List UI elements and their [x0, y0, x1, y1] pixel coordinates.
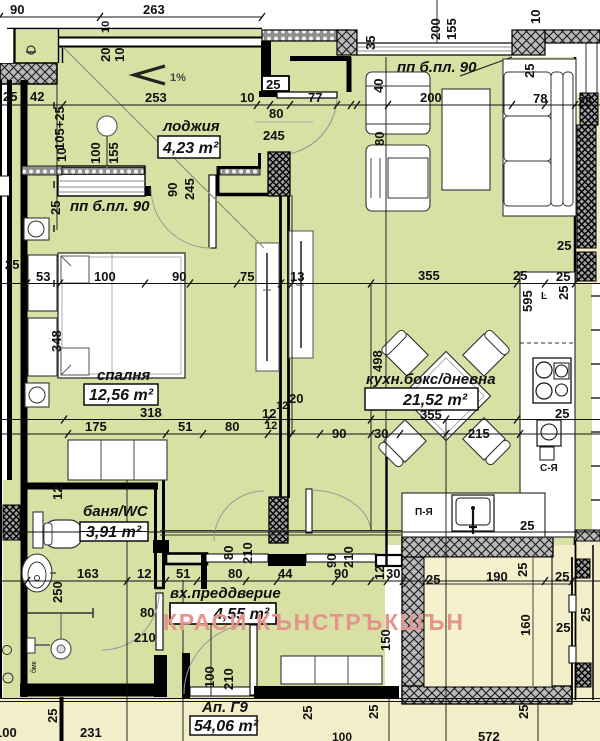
svg-text:40: 40	[371, 79, 386, 93]
svg-text:25: 25	[556, 286, 571, 300]
svg-text:12: 12	[50, 486, 65, 500]
svg-text:253: 253	[145, 90, 167, 105]
svg-text:80: 80	[372, 132, 387, 146]
svg-text:215: 215	[468, 426, 490, 441]
svg-text:лоджия: лоджия	[162, 118, 220, 135]
svg-text:4,23 m²: 4,23 m²	[162, 140, 219, 157]
svg-text:кухн.бокс/дневна: кухн.бокс/дневна	[366, 371, 496, 388]
svg-text:10: 10	[54, 148, 69, 162]
svg-text:80: 80	[269, 106, 283, 121]
svg-text:25: 25	[45, 709, 60, 723]
svg-text:спалня: спалня	[97, 367, 150, 384]
svg-text:355: 355	[418, 268, 440, 283]
svg-text:100: 100	[0, 725, 17, 740]
svg-text:вх.преддверие: вх.преддверие	[170, 585, 281, 602]
svg-text:348: 348	[49, 330, 64, 352]
svg-text:190: 190	[486, 569, 508, 584]
svg-text:78: 78	[533, 91, 547, 106]
svg-text:25: 25	[556, 620, 570, 635]
svg-text:Ап. Г9: Ап. Г9	[201, 699, 249, 716]
svg-text:21,52 m²: 21,52 m²	[402, 392, 468, 409]
svg-text:44: 44	[278, 566, 293, 581]
svg-text:10: 10	[240, 90, 254, 105]
svg-text:бмк: бмк	[30, 660, 38, 673]
svg-text:90: 90	[172, 269, 186, 284]
svg-text:25: 25	[556, 269, 570, 284]
svg-text:25: 25	[366, 705, 381, 719]
svg-text:баня/WC: баня/WC	[83, 503, 149, 520]
svg-text:100: 100	[88, 142, 103, 164]
svg-text:25: 25	[520, 518, 534, 533]
svg-text:51: 51	[178, 419, 192, 434]
svg-text:155: 155	[106, 142, 121, 164]
svg-text:Ŀ: Ŀ	[541, 291, 547, 302]
svg-text:25: 25	[522, 64, 537, 78]
svg-text:100: 100	[94, 269, 116, 284]
svg-text:25: 25	[426, 572, 440, 587]
svg-text:160: 160	[518, 614, 533, 636]
svg-text:25: 25	[515, 563, 530, 577]
svg-text:30: 30	[386, 566, 400, 581]
svg-text:318: 318	[140, 405, 162, 420]
svg-text:С-Я: С-Я	[540, 463, 558, 474]
svg-text:12: 12	[372, 566, 387, 580]
svg-text:80: 80	[228, 566, 242, 581]
svg-text:10: 10	[100, 21, 112, 33]
svg-text:25: 25	[266, 77, 280, 92]
svg-text:25: 25	[578, 94, 592, 109]
svg-text:КРАСИ КЪНСТРЪКШЪН: КРАСИ КЪНСТРЪКШЪН	[163, 609, 465, 635]
svg-text:498: 498	[370, 350, 385, 372]
svg-text:231: 231	[80, 725, 102, 740]
svg-text:51: 51	[176, 566, 190, 581]
svg-text:25: 25	[555, 406, 569, 421]
svg-text:42: 42	[30, 89, 44, 104]
svg-text:пп б.пл. 90: пп б.пл. 90	[70, 198, 150, 215]
svg-text:210: 210	[240, 542, 255, 564]
svg-text:25: 25	[555, 569, 569, 584]
svg-text:10: 10	[528, 10, 543, 24]
svg-text:1%: 1%	[170, 72, 186, 84]
svg-text:25: 25	[516, 705, 531, 719]
svg-text:25: 25	[578, 608, 593, 622]
svg-text:595: 595	[520, 290, 535, 312]
svg-text:245: 245	[182, 178, 197, 200]
svg-text:105+25: 105+25	[52, 106, 67, 150]
svg-text:80: 80	[140, 605, 154, 620]
svg-text:12: 12	[262, 406, 276, 421]
svg-text:100: 100	[332, 730, 352, 741]
svg-text:90: 90	[324, 554, 339, 568]
svg-text:210: 210	[341, 546, 356, 568]
svg-text:25: 25	[557, 238, 571, 253]
svg-text:80: 80	[221, 546, 236, 560]
svg-text:77: 77	[308, 90, 322, 105]
svg-text:250: 250	[50, 581, 65, 603]
svg-text:100: 100	[202, 666, 217, 688]
svg-text:12: 12	[276, 400, 288, 412]
svg-text:25: 25	[513, 268, 527, 283]
svg-text:175: 175	[85, 419, 107, 434]
svg-text:263: 263	[143, 2, 165, 17]
svg-text:53: 53	[36, 269, 50, 284]
svg-text:200: 200	[428, 18, 443, 40]
svg-text:20: 20	[289, 391, 303, 406]
svg-text:163: 163	[77, 566, 99, 581]
svg-text:200: 200	[420, 90, 442, 105]
svg-text:12: 12	[265, 420, 277, 432]
svg-text:12,56 m²: 12,56 m²	[89, 387, 154, 404]
svg-text:3,91 m²: 3,91 m²	[86, 524, 142, 541]
svg-text:30: 30	[374, 426, 388, 441]
svg-text:13: 13	[290, 269, 304, 284]
svg-text:75: 75	[240, 269, 254, 284]
svg-text:210: 210	[221, 668, 236, 690]
svg-text:90: 90	[332, 426, 346, 441]
svg-text:572: 572	[478, 729, 500, 741]
svg-text:80: 80	[225, 419, 239, 434]
svg-text:54,06 m²: 54,06 m²	[194, 718, 259, 735]
svg-text:10: 10	[112, 48, 127, 62]
svg-text:155: 155	[444, 18, 459, 40]
svg-text:25: 25	[48, 201, 63, 215]
svg-text:25: 25	[3, 89, 17, 104]
svg-text:25: 25	[5, 257, 19, 272]
svg-text:25: 25	[300, 706, 315, 720]
svg-text:12: 12	[137, 566, 151, 581]
svg-text:210: 210	[134, 630, 156, 645]
svg-text:П-Я: П-Я	[415, 507, 433, 518]
svg-text:20: 20	[98, 48, 113, 62]
svg-text:245: 245	[263, 128, 285, 143]
svg-text:35: 35	[363, 36, 378, 50]
svg-text:90: 90	[10, 2, 24, 17]
svg-text:90: 90	[165, 183, 180, 197]
